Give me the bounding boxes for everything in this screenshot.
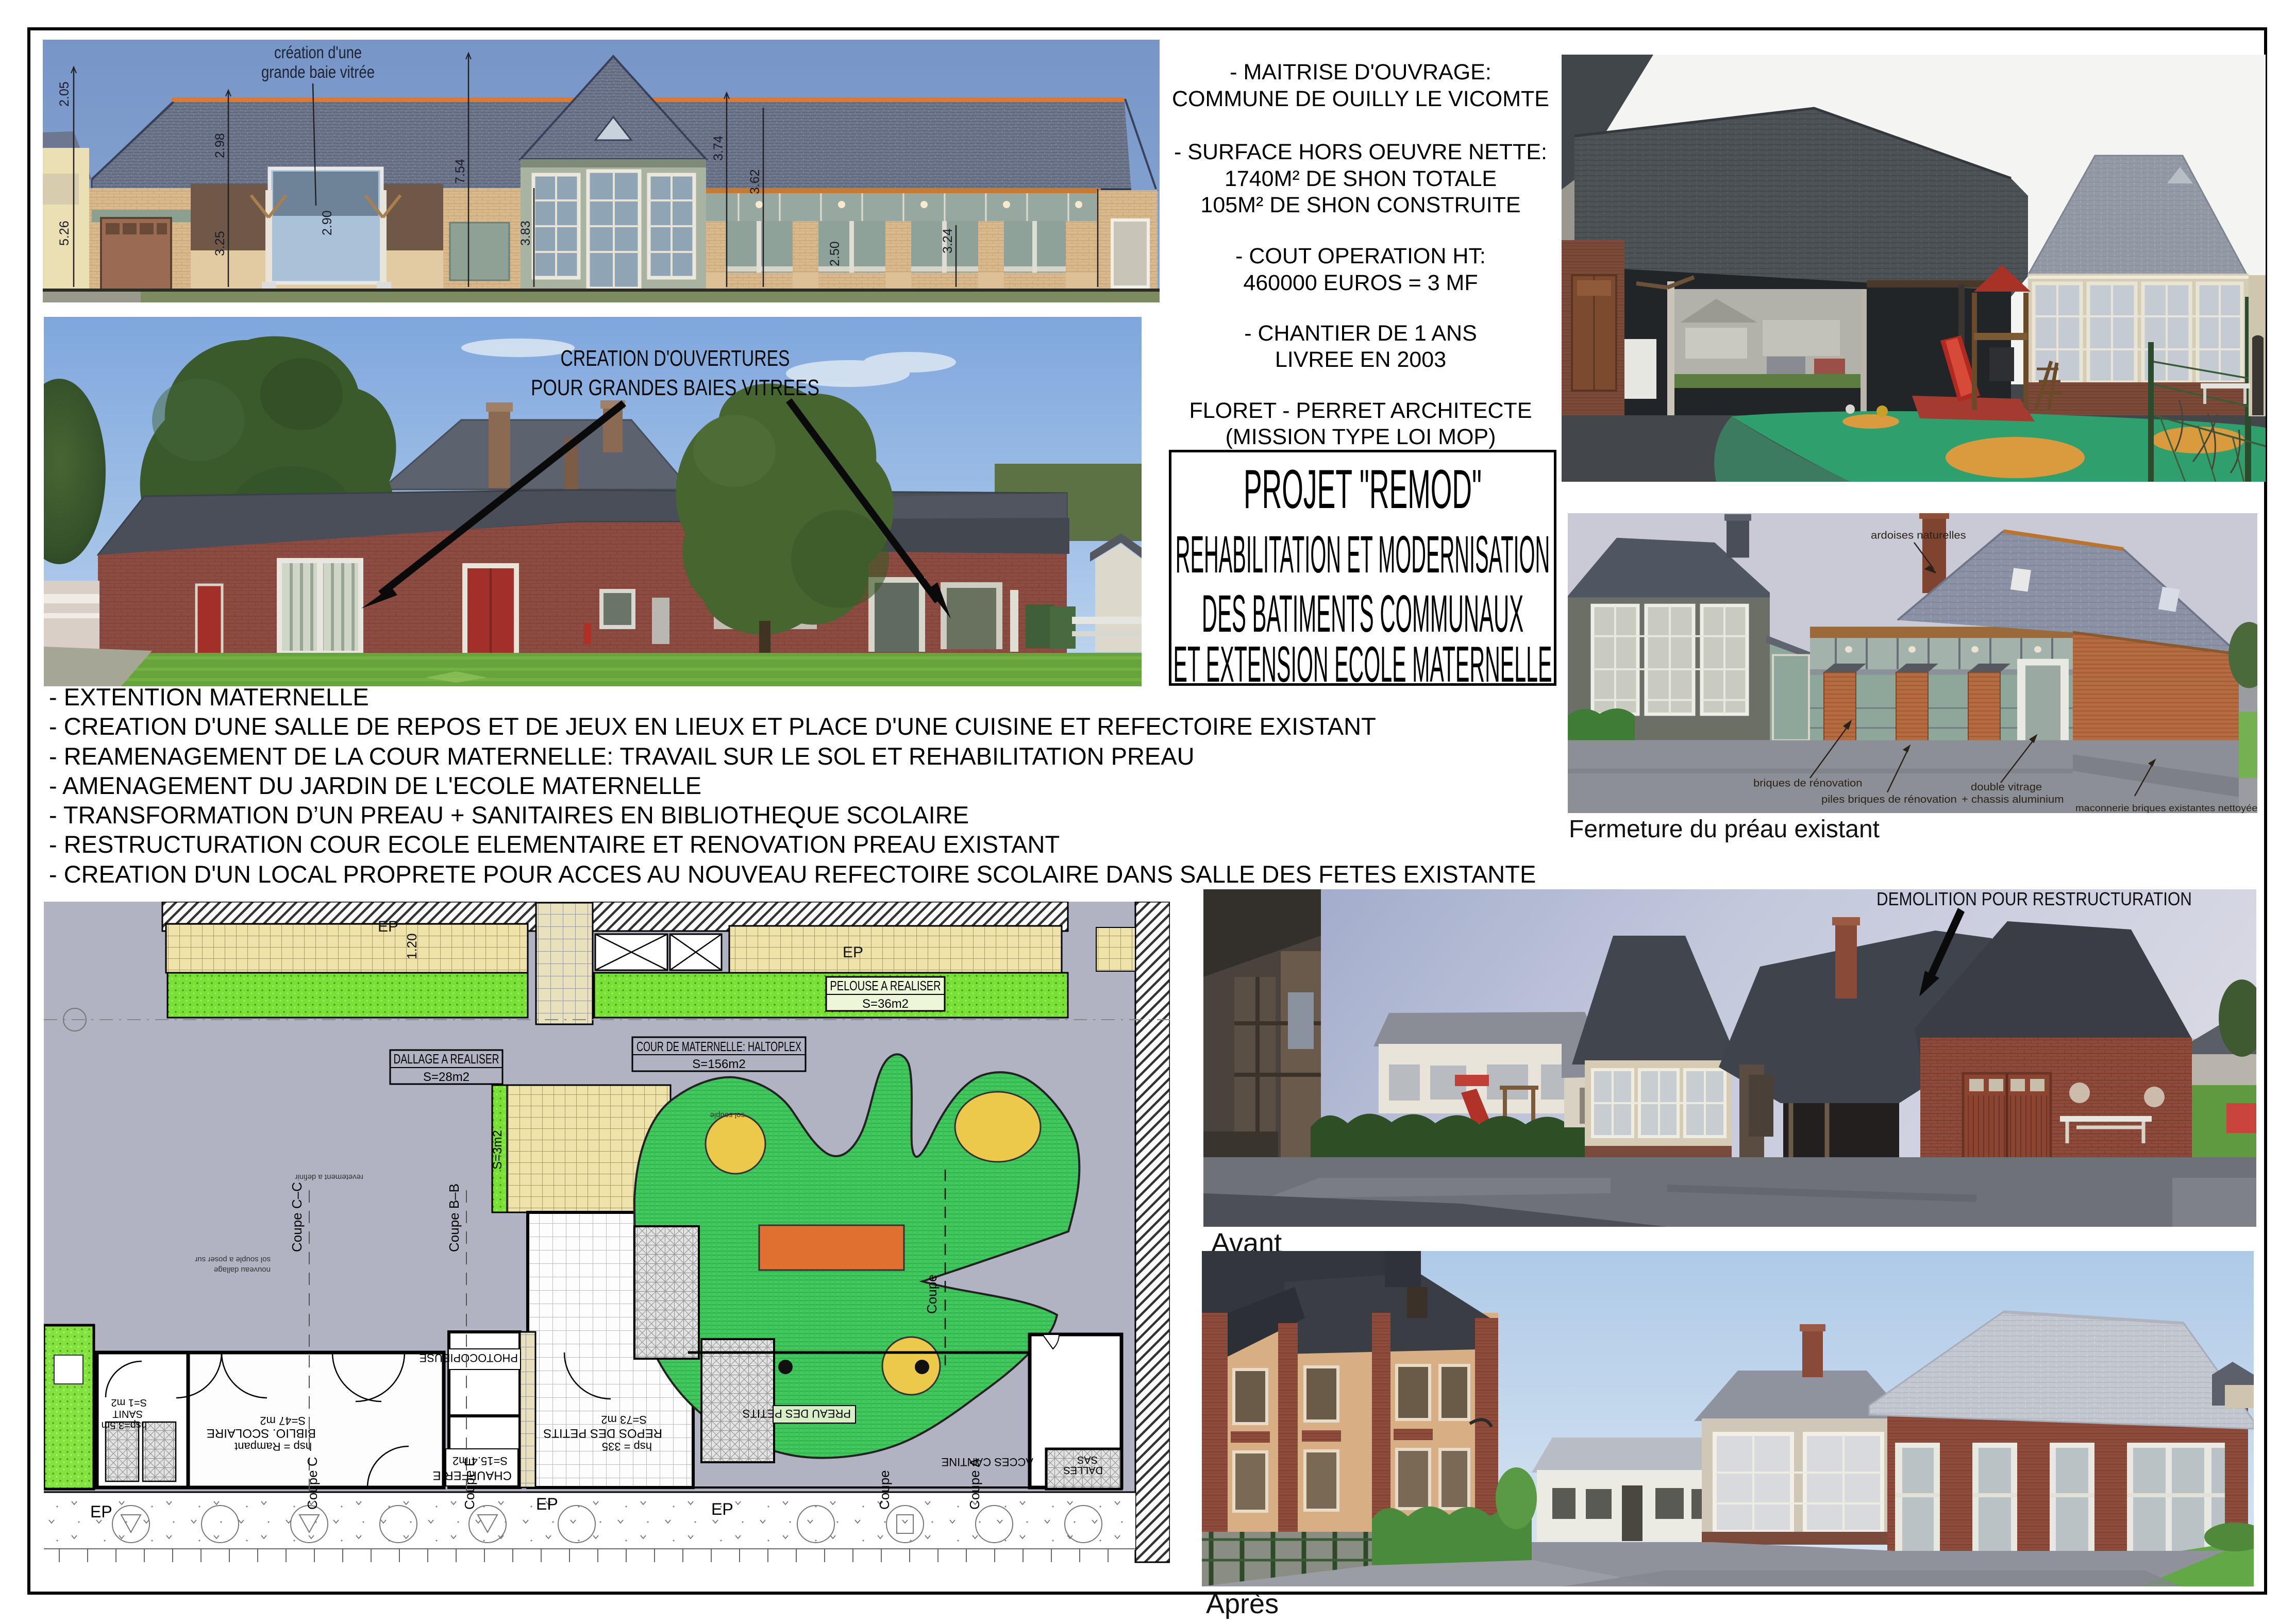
svg-text:EP: EP bbox=[536, 1495, 558, 1513]
svg-text:S=28m2: S=28m2 bbox=[423, 1070, 470, 1084]
svg-text:3.62: 3.62 bbox=[748, 169, 762, 194]
svg-text:S=156m2: S=156m2 bbox=[692, 1057, 745, 1071]
svg-text:DALLES: DALLES bbox=[1063, 1464, 1103, 1476]
svg-text:Coupe A: Coupe A bbox=[967, 1458, 982, 1510]
svg-text:Coupe E: Coupe E bbox=[462, 1458, 477, 1510]
svg-text:S=1 m2: S=1 m2 bbox=[111, 1397, 147, 1408]
svg-text:piles briques de rénovation: piles briques de rénovation bbox=[1821, 794, 1957, 805]
svg-text:Coupe C–C: Coupe C–C bbox=[289, 1182, 305, 1252]
svg-text:5.26: 5.26 bbox=[57, 221, 72, 246]
svg-text:DALLAGE A REALISER: DALLAGE A REALISER bbox=[394, 1051, 499, 1067]
svg-text:EP: EP bbox=[843, 944, 863, 961]
svg-text:hsp = Rampant: hsp = Rampant bbox=[234, 1440, 312, 1453]
svg-text:Coupe: Coupe bbox=[924, 1274, 940, 1314]
svg-text:briques de rénovation: briques de rénovation bbox=[1753, 777, 1863, 789]
svg-text:grande baie vitrée: grande baie vitrée bbox=[261, 62, 375, 81]
svg-text:S=47 m2: S=47 m2 bbox=[260, 1414, 306, 1427]
svg-text:sol souple a poser sur: sol souple a poser sur bbox=[195, 1255, 271, 1264]
svg-text:CREATION D'OUVERTURES: CREATION D'OUVERTURES bbox=[561, 346, 790, 371]
svg-text:PREAU DES PETITS: PREAU DES PETITS bbox=[743, 1407, 851, 1420]
svg-text:3.74: 3.74 bbox=[711, 136, 726, 161]
svg-text:POUR GRANDES BAIES VITREES: POUR GRANDES BAIES VITREES bbox=[531, 375, 819, 400]
svg-text:PELOUSE A REALISER: PELOUSE A REALISER bbox=[830, 978, 941, 993]
svg-text:3.83: 3.83 bbox=[518, 221, 533, 246]
svg-text:Coupe: Coupe bbox=[877, 1470, 892, 1510]
svg-text:ACCES CANTINE: ACCES CANTINE bbox=[942, 1456, 1033, 1468]
svg-text:sol souple: sol souple bbox=[710, 1111, 745, 1120]
svg-text:S=3m2: S=3m2 bbox=[491, 1130, 505, 1170]
svg-text:2.90: 2.90 bbox=[320, 210, 334, 235]
svg-text:+ chassis aluminium: + chassis aluminium bbox=[1962, 794, 2064, 805]
svg-text:3.25: 3.25 bbox=[213, 231, 227, 256]
svg-text:COUR DE MATERNELLE: HALTOPLEX: COUR DE MATERNELLE: HALTOPLEX bbox=[636, 1039, 801, 1054]
svg-text:S=36m2: S=36m2 bbox=[862, 997, 909, 1011]
svg-text:REPOS DES PETITS: REPOS DES PETITS bbox=[543, 1426, 662, 1440]
svg-text:2.98: 2.98 bbox=[213, 133, 227, 158]
svg-text:2.05: 2.05 bbox=[57, 81, 72, 107]
svg-text:EP: EP bbox=[378, 918, 398, 935]
svg-text:SANIT: SANIT bbox=[112, 1408, 143, 1419]
svg-text:ardoises naturelles: ardoises naturelles bbox=[1871, 530, 1966, 541]
svg-text:Coupe C: Coupe C bbox=[305, 1457, 320, 1510]
svg-text:BIBLIO. SCOLAIRE: BIBLIO. SCOLAIRE bbox=[207, 1426, 316, 1440]
svg-text:maconnerie briques existantes: maconnerie briques existantes nettoyées bbox=[2075, 803, 2257, 813]
svg-text:revetement a definir: revetement a definir bbox=[295, 1173, 363, 1181]
svg-text:PHOTOCOPIEUSE: PHOTOCOPIEUSE bbox=[419, 1351, 518, 1364]
svg-text:hsp=3.5m: hsp=3.5m bbox=[102, 1419, 147, 1431]
svg-text:création d'une: création d'une bbox=[274, 43, 362, 62]
svg-text:7.54: 7.54 bbox=[453, 159, 467, 184]
svg-text:S=15.4 m2: S=15.4 m2 bbox=[453, 1455, 508, 1467]
svg-text:double vitrage: double vitrage bbox=[1971, 782, 2042, 793]
svg-text:EP: EP bbox=[711, 1500, 733, 1518]
svg-text:SAS: SAS bbox=[1077, 1454, 1098, 1465]
svg-text:nouveau dallage: nouveau dallage bbox=[214, 1265, 271, 1274]
svg-text:1.20: 1.20 bbox=[404, 933, 420, 959]
svg-text:S=73 m2: S=73 m2 bbox=[601, 1413, 647, 1426]
svg-text:3.24: 3.24 bbox=[941, 228, 955, 253]
svg-text:2.50: 2.50 bbox=[828, 241, 842, 266]
svg-text:hsp = 335: hsp = 335 bbox=[602, 1440, 652, 1453]
svg-text:EP: EP bbox=[90, 1502, 112, 1521]
svg-text:Coupe B–B: Coupe B–B bbox=[446, 1184, 462, 1252]
